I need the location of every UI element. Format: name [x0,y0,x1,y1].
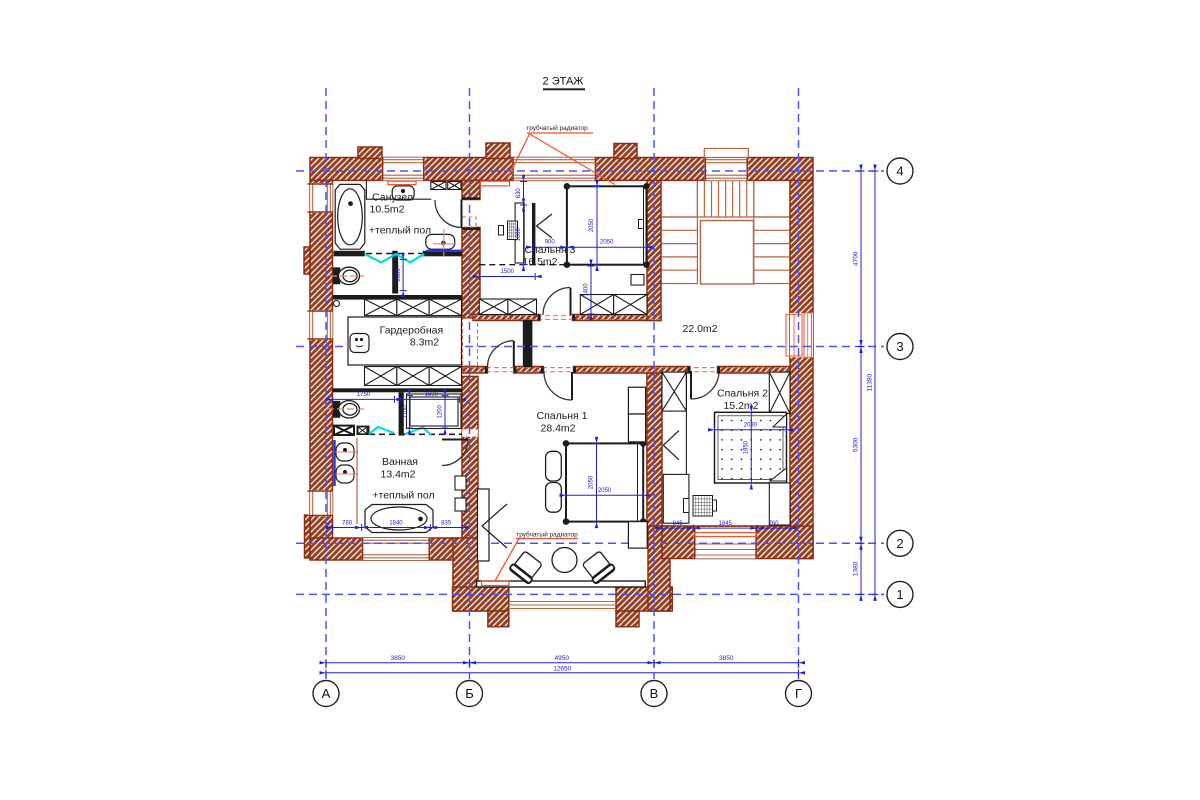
svg-text:3850: 3850 [391,655,406,662]
svg-text:8.3m2: 8.3m2 [410,337,439,349]
svg-text:10.5m2: 10.5m2 [369,204,404,216]
svg-text:760: 760 [769,521,780,527]
svg-text:845: 845 [673,521,684,527]
svg-text:1200: 1200 [438,405,444,419]
svg-text:13.4m2: 13.4m2 [380,469,415,481]
svg-text:1380: 1380 [853,561,860,576]
svg-text:15.2m2: 15.2m2 [723,400,758,412]
svg-text:11380: 11380 [867,374,874,392]
svg-text:1850: 1850 [744,440,750,454]
svg-text:835: 835 [441,520,452,526]
svg-text:4: 4 [896,164,903,179]
svg-text:Санузел: Санузел [372,192,413,204]
svg-text:2: 2 [896,536,903,551]
svg-text:Ванная: Ванная [382,456,418,468]
svg-text:Спальня 2: Спальня 2 [717,388,768,400]
svg-text:1840: 1840 [389,520,403,526]
svg-text:трубчатый радиатор: трубчатый радиатор [516,531,578,539]
svg-text:12650: 12650 [553,665,571,672]
svg-text:1750: 1750 [357,392,371,398]
svg-text:2050: 2050 [589,218,595,232]
svg-text:630: 630 [516,188,522,199]
svg-text:Гардеробная: Гардеробная [380,325,444,337]
svg-text:2050: 2050 [600,240,614,246]
svg-text:1845: 1845 [719,521,733,527]
svg-text:1600: 1600 [425,392,439,398]
svg-text:28.4m2: 28.4m2 [540,423,575,435]
svg-text:16.5m2: 16.5m2 [522,256,557,268]
svg-text:22.0m2: 22.0m2 [682,323,717,335]
svg-text:Спальня 1: Спальня 1 [537,410,588,422]
svg-text:900: 900 [545,240,556,246]
svg-text:5300: 5300 [853,437,860,452]
svg-text:2050: 2050 [589,475,595,489]
svg-text:1: 1 [896,587,903,602]
svg-text:1600: 1600 [516,227,522,241]
svg-text:2030: 2030 [744,423,758,429]
svg-text:4950: 4950 [555,655,570,662]
svg-text:+теплый пол: +теплый пол [372,490,434,502]
svg-text:1400: 1400 [583,283,589,297]
svg-text:2 ЭТАЖ: 2 ЭТАЖ [543,76,584,88]
svg-text:1100: 1100 [402,405,408,419]
svg-text:1500: 1500 [501,269,515,275]
svg-text:3850: 3850 [719,655,734,662]
svg-text:4700: 4700 [853,251,860,266]
svg-text:780: 780 [342,520,353,526]
svg-text:Г: Г [795,686,802,701]
svg-text:3: 3 [896,339,903,354]
svg-text:+теплый пол: +теплый пол [369,225,431,237]
svg-text:А: А [322,686,331,701]
svg-text:трубчатый радиатор: трубчатый радиатор [526,124,588,132]
svg-text:1600: 1600 [396,268,402,282]
svg-text:Б: Б [465,686,474,701]
svg-text:В: В [650,686,659,701]
svg-text:2050: 2050 [598,488,612,494]
